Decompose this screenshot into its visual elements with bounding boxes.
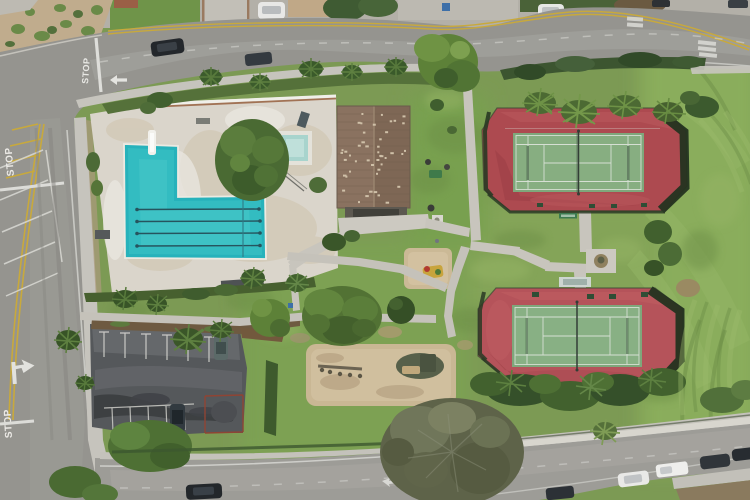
svg-text:STOP: STOP (80, 57, 92, 84)
